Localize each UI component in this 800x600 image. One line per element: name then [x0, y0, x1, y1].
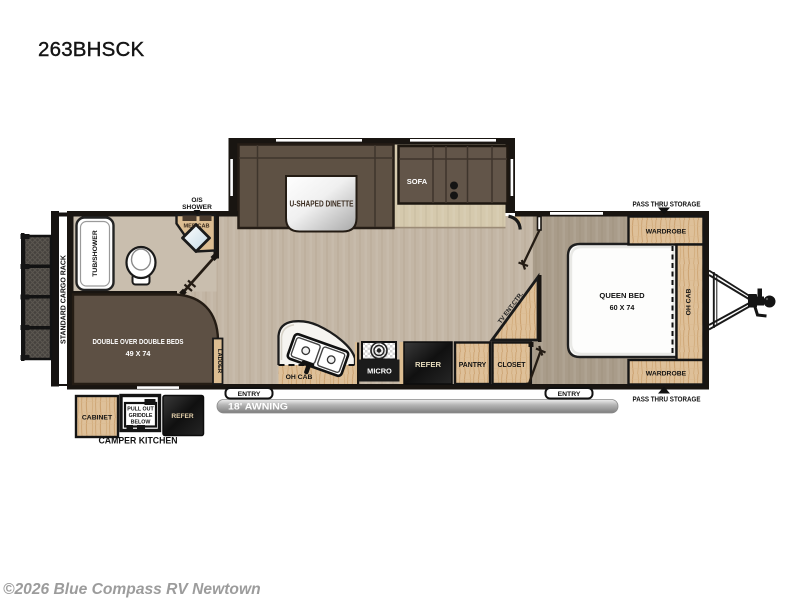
- svg-text:©2026 Blue Compass RV Newtown: ©2026 Blue Compass RV Newtown: [3, 581, 261, 598]
- svg-text:OH CAB: OH CAB: [286, 374, 313, 381]
- svg-text:49 X 74: 49 X 74: [126, 349, 151, 358]
- svg-text:BELOW: BELOW: [131, 420, 151, 426]
- svg-text:REFER: REFER: [415, 360, 442, 369]
- svg-text:18' AWNING: 18' AWNING: [228, 402, 288, 413]
- svg-text:O/S: O/S: [191, 197, 203, 204]
- svg-text:REFER: REFER: [171, 413, 194, 420]
- svg-text:MED CAB: MED CAB: [183, 224, 209, 230]
- svg-text:QUEEN BED: QUEEN BED: [599, 291, 645, 300]
- svg-text:OH CAB: OH CAB: [686, 289, 693, 316]
- svg-text:CAMPER KITCHEN: CAMPER KITCHEN: [99, 436, 178, 446]
- svg-text:PANTRY: PANTRY: [459, 362, 487, 369]
- svg-text:GRIDDLE: GRIDDLE: [129, 413, 153, 419]
- svg-text:CLOSET: CLOSET: [498, 362, 527, 369]
- svg-text:MICRO: MICRO: [367, 367, 392, 376]
- svg-text:SHOWER: SHOWER: [182, 204, 212, 211]
- svg-text:U-SHAPED DINETTE: U-SHAPED DINETTE: [290, 200, 355, 209]
- svg-text:PULL OUT: PULL OUT: [127, 407, 154, 413]
- svg-text:SOFA: SOFA: [407, 177, 428, 186]
- svg-text:TUB/SHOWER: TUB/SHOWER: [92, 230, 99, 277]
- svg-text:DOUBLE OVER DOUBLE BEDS: DOUBLE OVER DOUBLE BEDS: [93, 337, 184, 346]
- svg-text:263BHSCK: 263BHSCK: [38, 38, 145, 61]
- svg-text:WARDROBE: WARDROBE: [646, 371, 687, 378]
- svg-text:PASS THRU STORAGE: PASS THRU STORAGE: [633, 397, 701, 404]
- svg-text:WARDROBE: WARDROBE: [646, 229, 687, 236]
- svg-text:ENTRY: ENTRY: [558, 391, 581, 398]
- svg-text:60 X 74: 60 X 74: [610, 303, 635, 312]
- svg-text:PASS THRU STORAGE: PASS THRU STORAGE: [633, 202, 701, 209]
- svg-text:ENTRY: ENTRY: [238, 391, 261, 398]
- svg-text:LADDER: LADDER: [216, 349, 222, 374]
- svg-text:STANDARD CARGO RACK: STANDARD CARGO RACK: [61, 255, 68, 344]
- svg-text:CABINET: CABINET: [82, 415, 113, 422]
